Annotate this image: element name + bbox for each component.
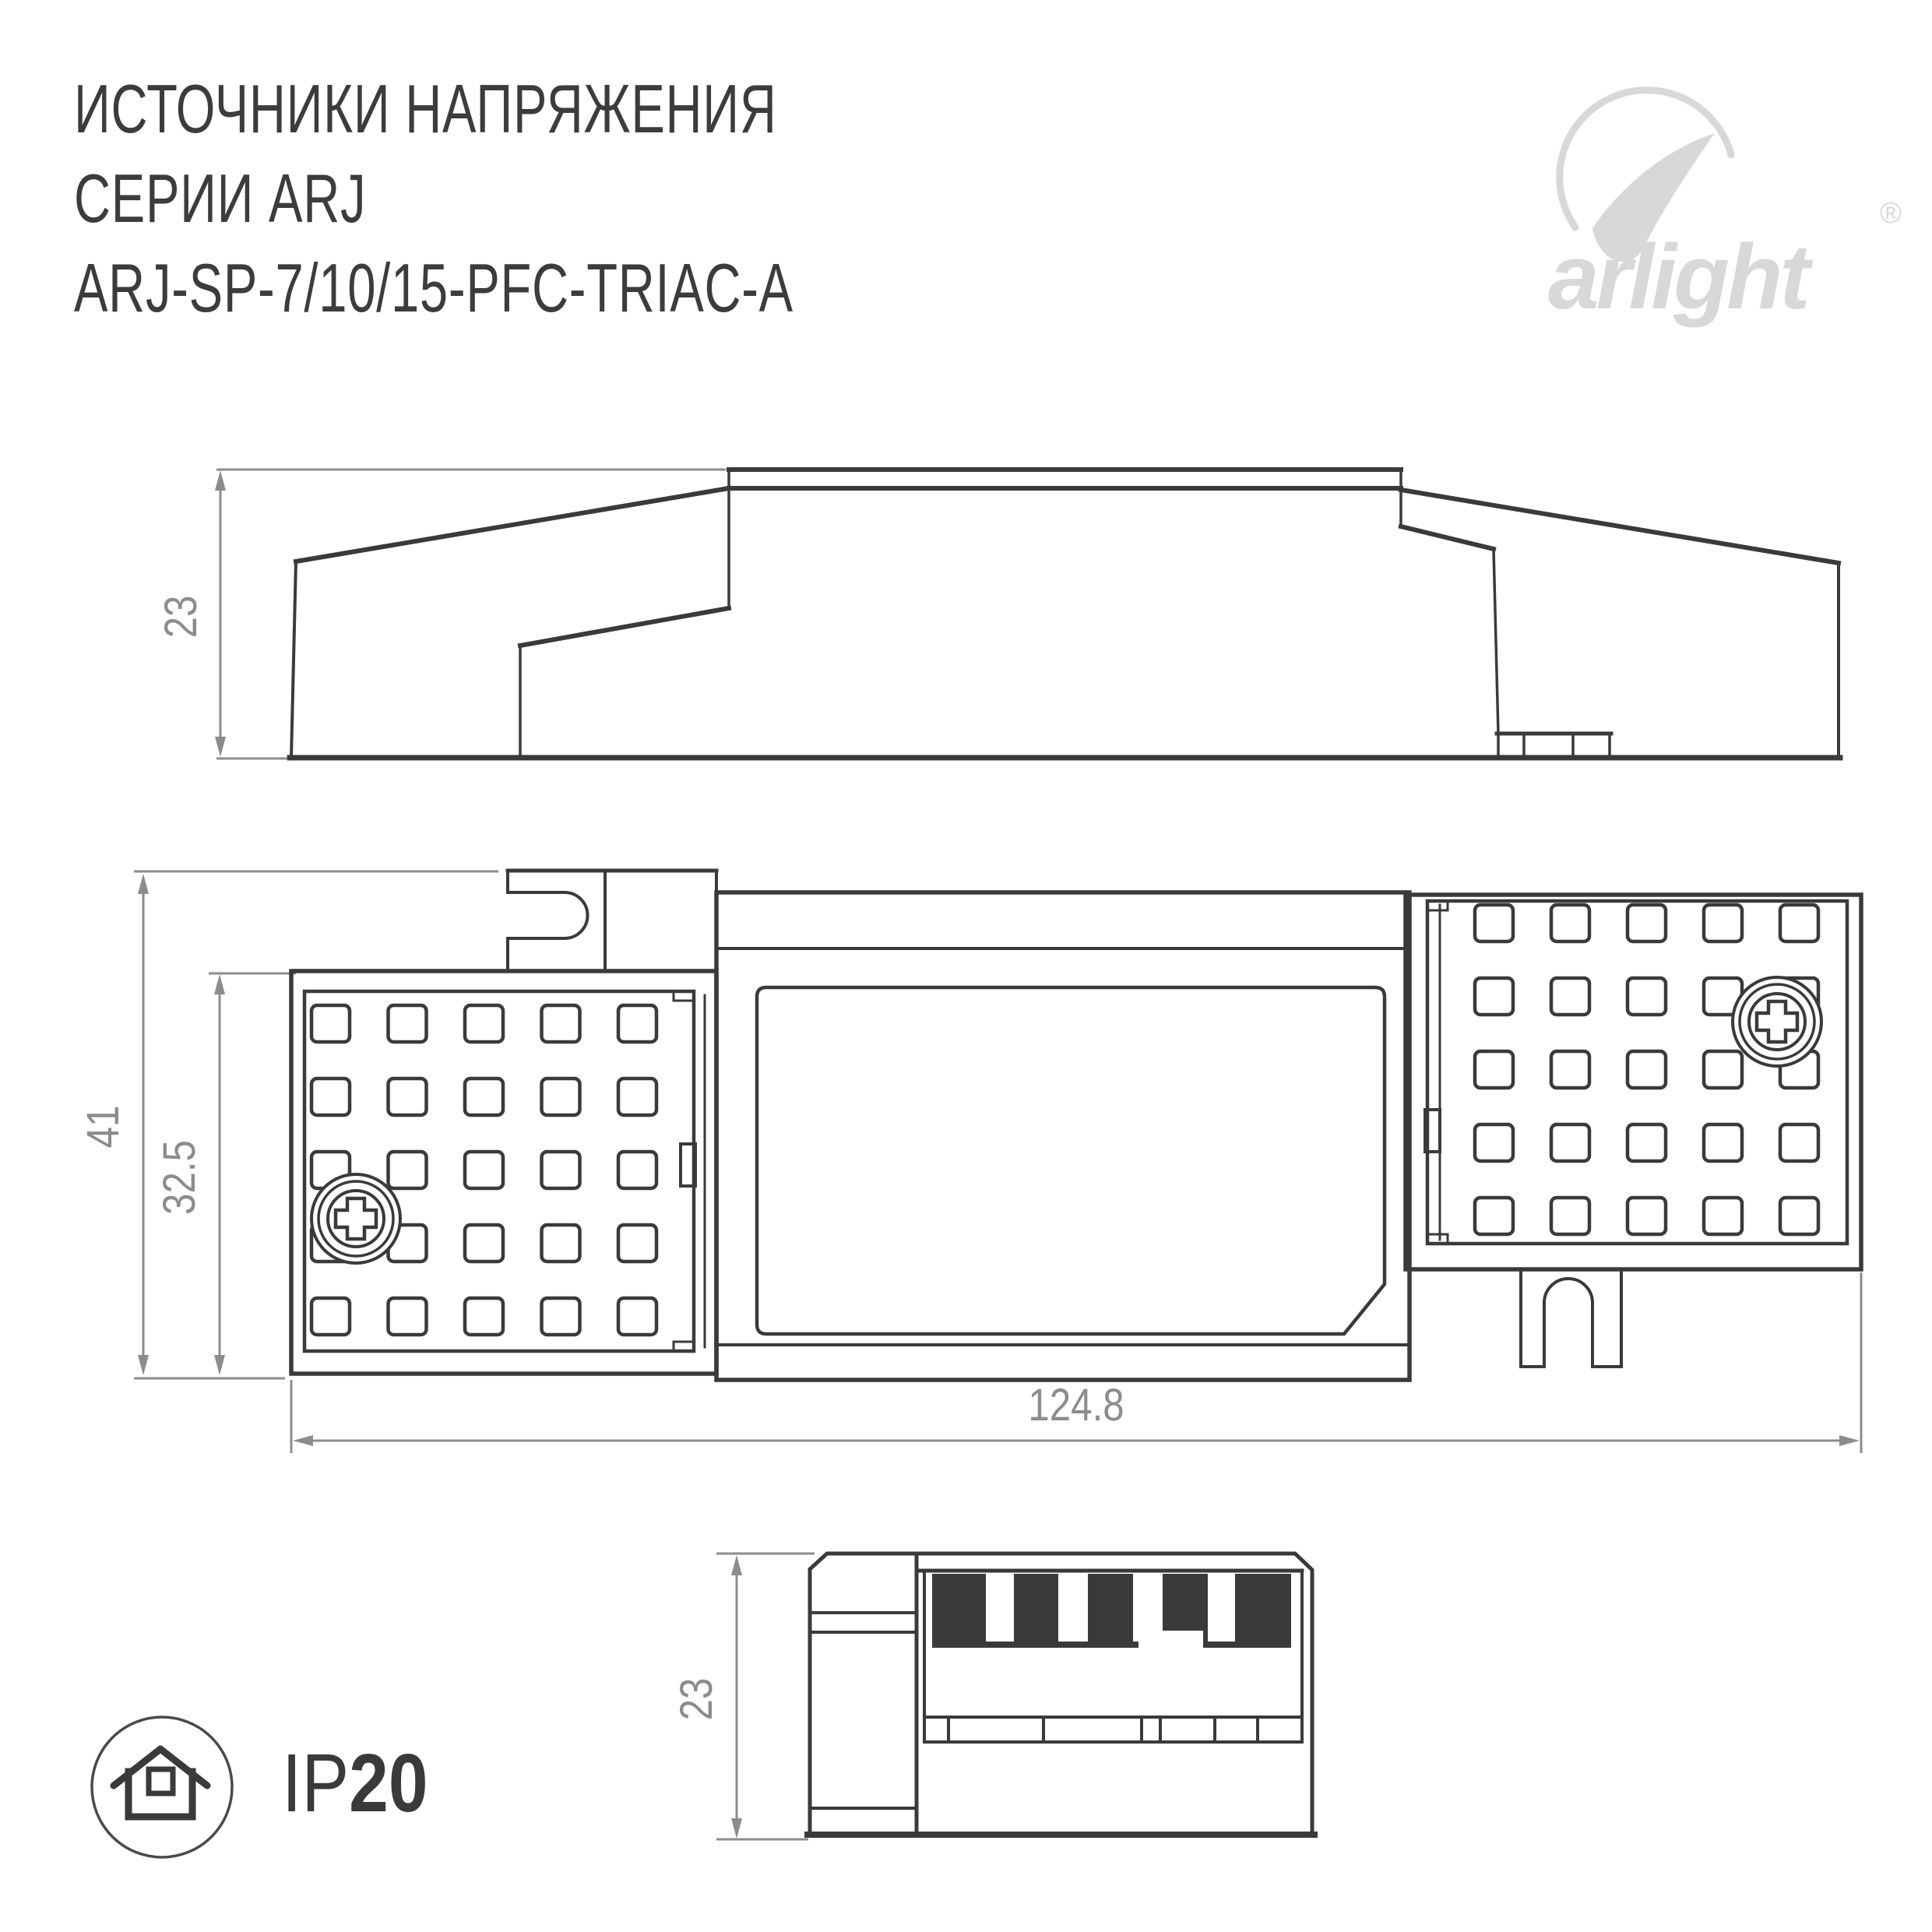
right-grille-panel: [1427, 901, 1847, 1244]
dimension-label-total-width: 124.8: [1028, 1380, 1124, 1431]
dimension-top-total-width: 124.8: [293, 1380, 1860, 1446]
dimension-label-total-height: 41: [78, 1106, 128, 1149]
bottom-mounting-ear: [1521, 1269, 1621, 1367]
dimension-label-end-height: 23: [671, 1678, 722, 1721]
side-left-edge: [291, 561, 296, 758]
left-grille-holes: [311, 1005, 656, 1335]
ip-label: IP: [282, 1737, 349, 1829]
side-view: 23: [156, 470, 1840, 758]
label-area: [757, 987, 1385, 1334]
right-grille-holes: [1475, 905, 1818, 1234]
dimension-side-height: 23: [156, 470, 226, 757]
left-screw-icon: [311, 1174, 400, 1263]
end-view: 23: [671, 1554, 1314, 1839]
dimension-top-total-height: 41: [78, 874, 149, 1375]
dimension-label-side-height: 23: [156, 596, 206, 639]
terminal-block: [917, 1571, 1302, 1742]
side-connector-tabs: [1497, 734, 1611, 758]
top-mounting-ear: [508, 871, 716, 971]
dimension-end-height: 23: [671, 1555, 742, 1839]
ip-value: 20: [349, 1737, 428, 1829]
top-view-right-housing: [1406, 895, 1861, 1269]
top-view-center-section: [716, 892, 1409, 1380]
dimension-top-body-height: 32.5: [154, 974, 225, 1375]
side-left-slant: [296, 488, 729, 561]
technical-drawing-page: ИСТОЧНИКИ НАПРЯЖЕНИЯ СЕРИИ ARJ ARJ-SP-7/…: [0, 0, 1932, 1932]
top-view-left-housing: [291, 971, 716, 1374]
ip-rating-badge: [76, 1708, 255, 1875]
ip-rating-text: IP20: [282, 1737, 428, 1831]
dimension-label-body-height: 32.5: [154, 1140, 205, 1215]
right-screw-icon: [1733, 977, 1821, 1066]
top-view: 41 32.5 124.8: [78, 871, 1861, 1453]
house-in-circle-icon: [92, 1717, 232, 1857]
side-right-slant: [1401, 490, 1839, 563]
